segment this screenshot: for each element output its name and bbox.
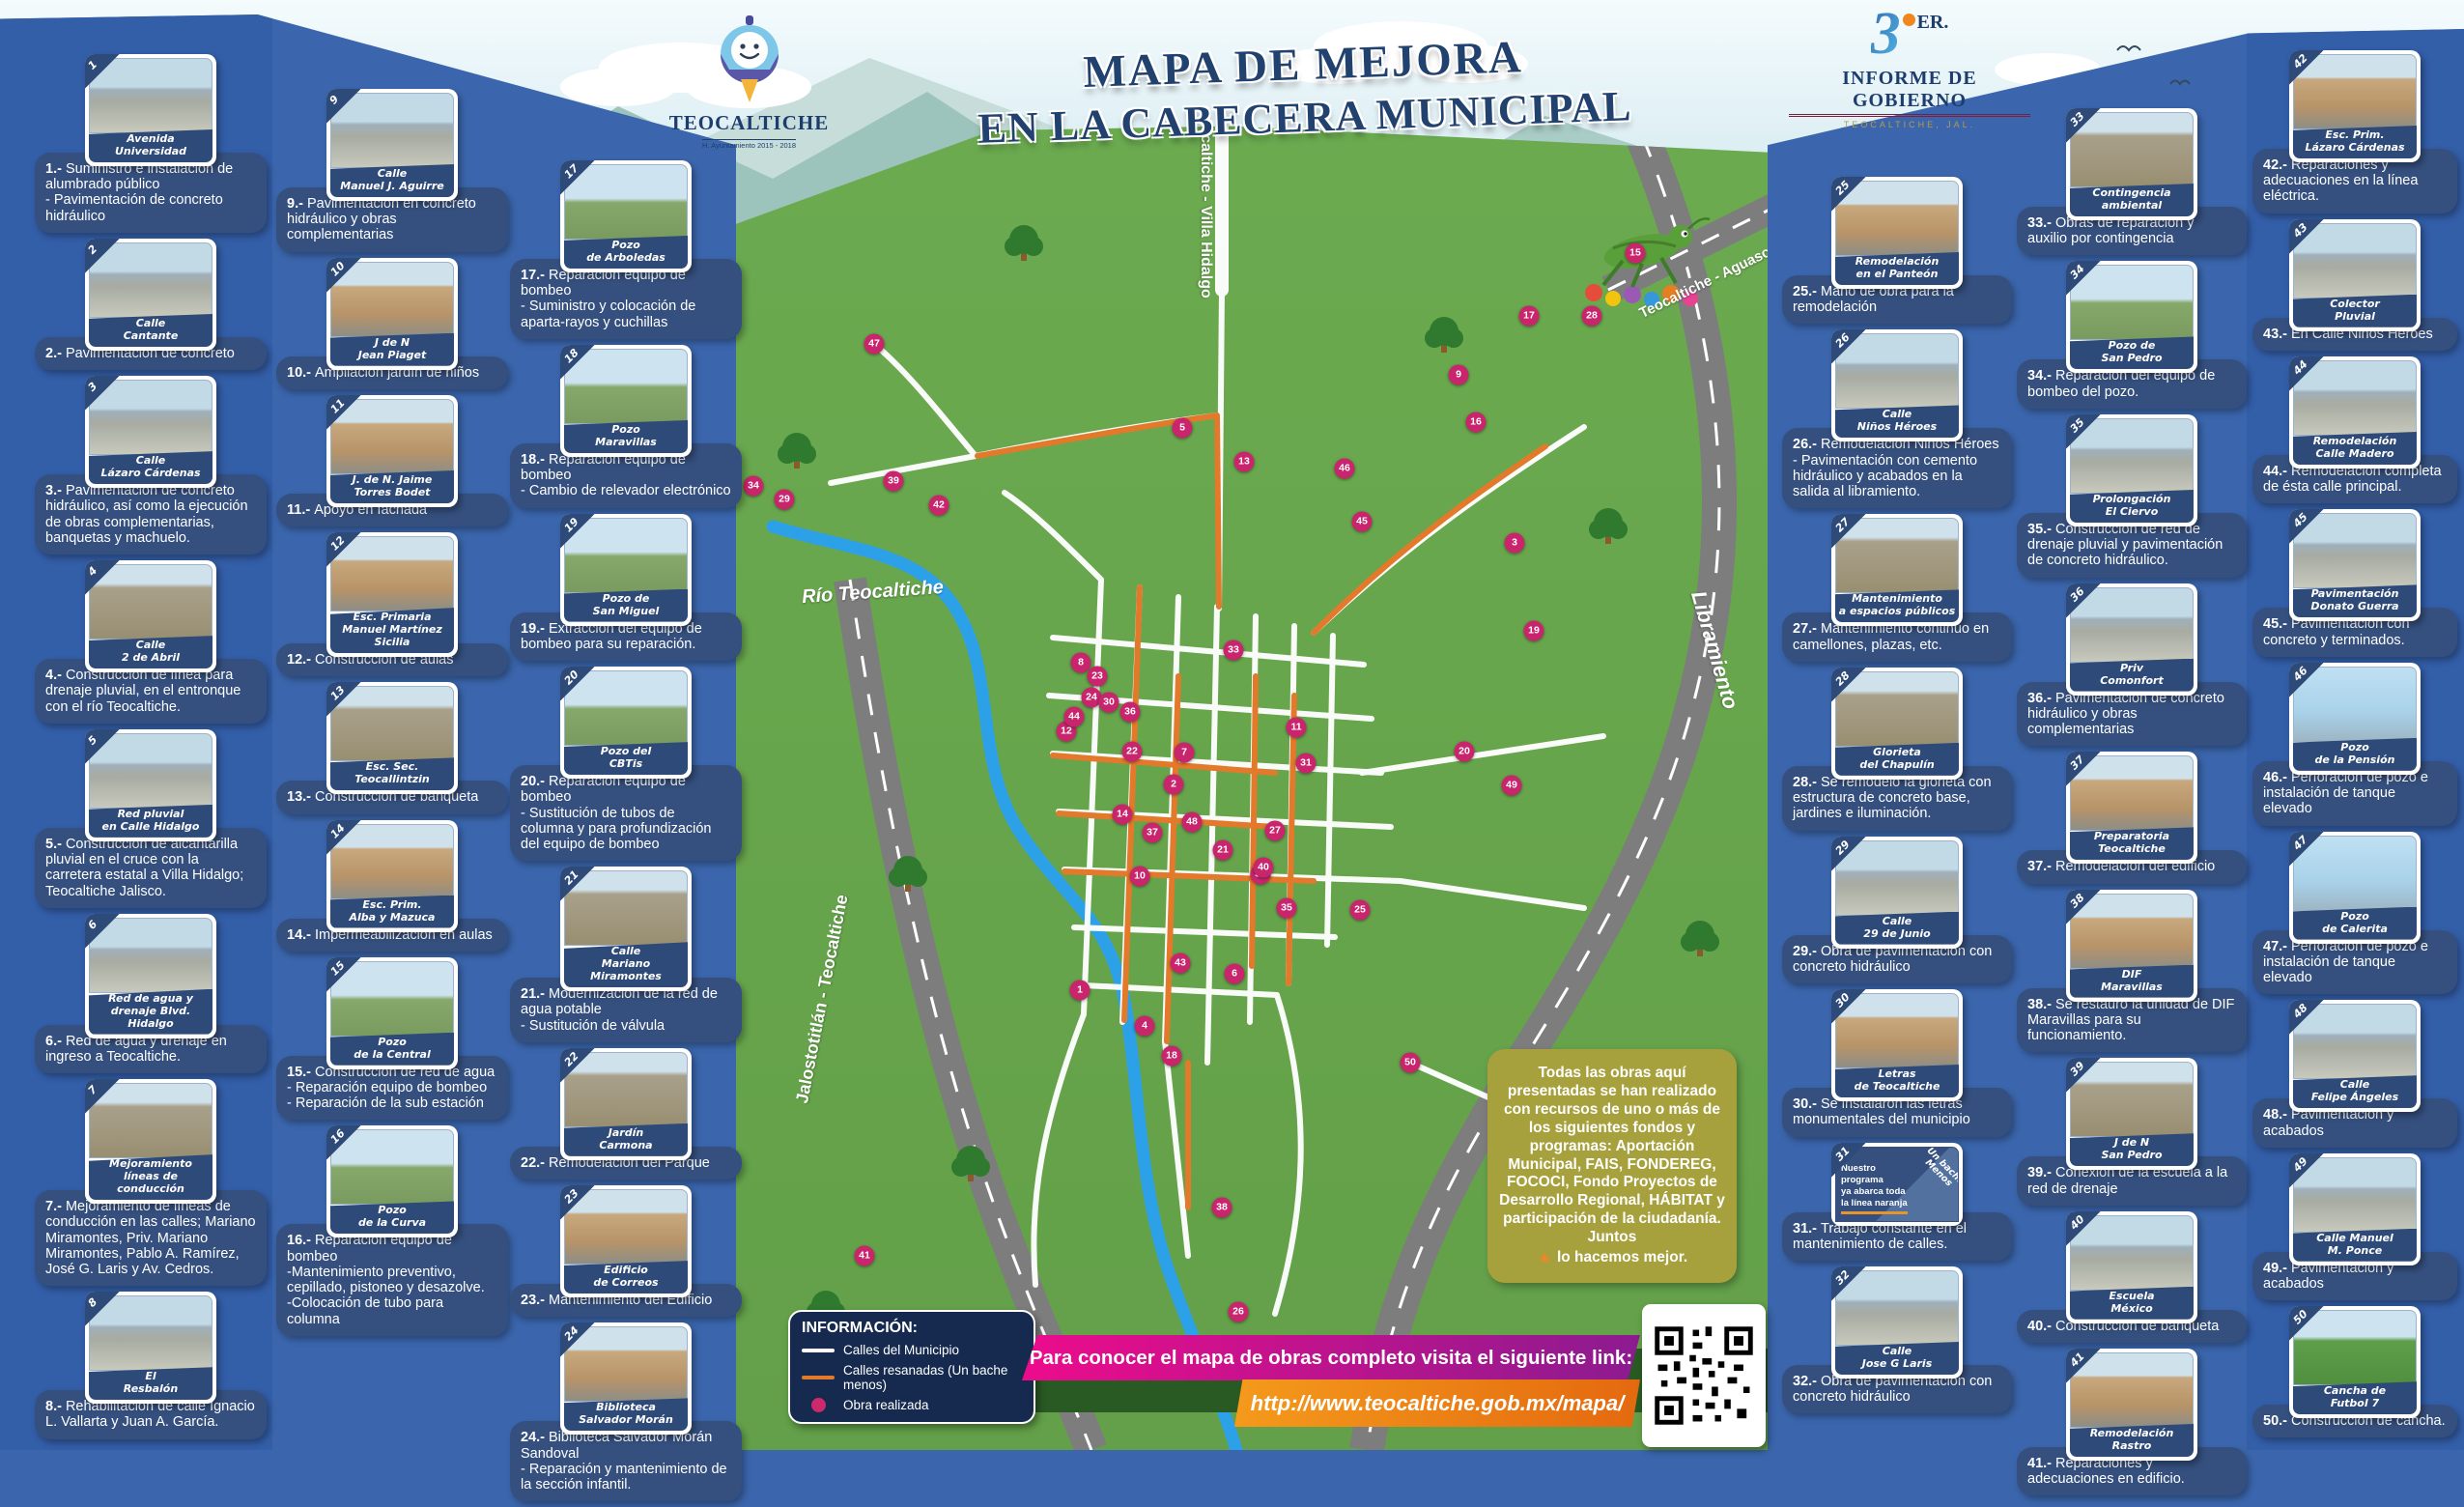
item-photo-caption: Mantenimiento a espacios públicos [1835, 589, 1959, 622]
photo-card: 34 Pozo de San Pedro [2066, 261, 2197, 373]
photo-card: 5 Red pluvial en Calle Hidalgo [85, 729, 216, 841]
map-marker-25: 25 [1350, 900, 1371, 921]
legend-entry-completed-work: Obra realizada [802, 1398, 1022, 1412]
map-marker-9: 9 [1449, 365, 1469, 385]
improvement-item: 36 Priv Comonfort 36.- Pavimentación de … [2017, 583, 2247, 747]
item-number: 14 [328, 821, 348, 840]
item-description-text: Construcción de alcantarilla pluvial en … [45, 837, 243, 899]
photo-card: 46 Pozo de la Pensión [2289, 663, 2421, 775]
map-marker-40: 40 [1254, 858, 1274, 878]
item-photo-caption: Jardín Carmona [564, 1123, 688, 1156]
improvement-item: 34 Pozo de San Pedro 34.- Reparación del… [2017, 261, 2247, 408]
corner-fold: 31 [1831, 1143, 1866, 1178]
item-number: 4 [86, 564, 100, 579]
item-description-text: Biblioteca Salvador Morán Sandoval - Rep… [521, 1430, 727, 1493]
item-photo-caption: Pozo de San Pedro [2070, 336, 2194, 369]
map-marker-44: 44 [1064, 707, 1085, 727]
corner-fold: 5 [85, 729, 120, 764]
item-description-text: Pavimentación de concreto hidráulico, as… [45, 483, 248, 546]
numeral-three-icon: 3 [1871, 8, 1901, 62]
item-photo-caption: Red de agua y drenaje Blvd. Hidalgo [89, 989, 212, 1035]
map-marker-31: 31 [1296, 753, 1317, 774]
map-marker-5: 5 [1173, 418, 1193, 439]
item-description-number: 26.- [1793, 437, 1821, 452]
corner-fold: 13 [326, 682, 361, 717]
photo-card: 3 Calle Lázaro Cárdenas [85, 376, 216, 488]
item-number: 5 [86, 733, 100, 748]
map-marker-6: 6 [1225, 964, 1245, 984]
photo-card: 26 Calle Niños Héroes [1831, 329, 1963, 441]
corner-fold: 23 [560, 1185, 595, 1220]
item-description-number: 16.- [287, 1233, 315, 1248]
corner-fold: 3 [85, 376, 120, 411]
item-number: 17 [562, 161, 581, 181]
item-description-number: 45.- [2263, 616, 2291, 632]
corner-fold: 35 [2066, 414, 2101, 449]
item-description: 7.- Mejoramiento de líneas de conducción… [35, 1190, 267, 1286]
funding-note-text: Todas las obras aquí presentadas se han … [1499, 1065, 1725, 1245]
item-photo-caption: Mejoramiento líneas de conducción [89, 1154, 212, 1200]
item-description-number: 46.- [2263, 770, 2291, 785]
orange-line-swatch [802, 1376, 835, 1379]
improvement-item: 21 Calle Mariano Miramontes 21.- Moderni… [510, 867, 742, 1042]
item-description-number: 8.- [45, 1399, 66, 1414]
map-legend: INFORMACIÓN: Calles del Municipio Calles… [788, 1310, 1035, 1424]
item-photo-caption: Avenida Universidad [89, 129, 212, 162]
improvement-item: 5 Red pluvial en Calle Hidalgo 5.- Const… [35, 729, 267, 908]
photo-card: 9 Calle Manuel J. Aguirre [326, 89, 458, 201]
corner-fold: 43 [2289, 219, 2324, 254]
item-photo-caption: Esc. Prim. Lázaro Cárdenas [2293, 126, 2417, 158]
item-description-text: Pavimentación de concreto hidráulico y o… [2027, 691, 2224, 737]
items-column-4: 25 Remodelación en el Panteón 25.- Mano … [1782, 177, 2012, 1419]
improvement-item: 39 J de N San Pedro 39.- Conexión de la … [2017, 1058, 2247, 1205]
improvement-item: 24 Biblioteca Salvador Morán 24.- Biblio… [510, 1322, 742, 1501]
photo-card: 1 Avenida Universidad [85, 54, 216, 166]
item-number: 6 [86, 918, 100, 932]
corner-fold: 14 [326, 820, 361, 855]
item-description-number: 3.- [45, 483, 66, 498]
improvement-item: 18 Pozo Maravillas 18.- Reparación equip… [510, 345, 742, 508]
corner-fold: 4 [85, 560, 120, 595]
item-photo-caption: Pozo del CBTis [564, 742, 688, 775]
qr-code [1642, 1304, 1766, 1447]
item-number: 49 [2291, 1154, 2310, 1174]
item-number: 3 [86, 380, 100, 394]
item-photo-caption: Cancha de Futbol 7 [2293, 1381, 2417, 1414]
photo-card: 30 Letras de Teocaltiche [1831, 989, 1963, 1101]
map-marker-16: 16 [1466, 412, 1487, 433]
item-photo-caption: Pozo de la Curva [330, 1201, 454, 1234]
corner-fold: 49 [2289, 1153, 2324, 1188]
item-description-number: 27.- [1793, 621, 1821, 637]
photo-card: 12 Esc. Primaria Manuel Martínez Sicilia [326, 532, 458, 657]
item-photo-caption: Esc. Sec. Teocallintzin [330, 757, 454, 790]
item-number: 45 [2291, 511, 2310, 530]
item-number: 40 [2068, 1212, 2087, 1232]
corner-fold: 20 [560, 667, 595, 701]
item-number: 20 [562, 668, 581, 688]
item-description-number: 19.- [521, 621, 549, 637]
photo-card: 4 Calle 2 de Abril [85, 560, 216, 672]
link-url[interactable]: http://www.teocaltiche.gob.mx/mapa/ [1251, 1391, 1625, 1416]
item-description: 16.- Reparación equipo de bombeo -Manten… [276, 1224, 508, 1335]
photo-card: 7 Mejoramiento líneas de conducción [85, 1079, 216, 1204]
photo-card: 20 Pozo del CBTis [560, 667, 692, 779]
item-description-number: 10.- [287, 365, 315, 381]
corner-fold: 8 [85, 1292, 120, 1326]
item-description-text: Mejoramiento de líneas de conducción en … [45, 1199, 256, 1277]
improvement-item: 47 Pozo de Calerita 47.- Perforación de … [2252, 832, 2457, 995]
item-description-number: 31.- [1793, 1221, 1821, 1237]
map-marker-10: 10 [1130, 867, 1150, 887]
improvement-item: 45 Pavimentación Donato Guerra 45.- Pavi… [2252, 509, 2457, 656]
item-description-number: 20.- [521, 774, 549, 789]
item-number: 9 [327, 93, 342, 107]
corner-fold: 37 [2066, 752, 2101, 786]
item-number: 37 [2068, 753, 2087, 773]
funding-note-tail: lo hacemos mejor. [1557, 1249, 1687, 1265]
link-url-banner[interactable]: http://www.teocaltiche.gob.mx/mapa/ [1234, 1379, 1640, 1427]
item-number: 35 [2068, 415, 2087, 435]
map-marker-37: 37 [1143, 823, 1163, 843]
streets-orange [977, 415, 1545, 1208]
map-marker-47: 47 [864, 334, 885, 355]
improvement-item: 7 Mejoramiento líneas de conducción 7.- … [35, 1079, 267, 1286]
item-photo-caption: Preparatoria Teocaltiche [2070, 827, 2194, 860]
corner-fold: 9 [326, 89, 361, 124]
corner-fold: 22 [560, 1048, 595, 1083]
improvement-item: 3 Calle Lázaro Cárdenas 3.- Pavimentació… [35, 376, 267, 554]
item-photo-caption: Edificio de Correos [564, 1261, 688, 1294]
corner-fold: 38 [2066, 890, 2101, 924]
bird-icon [2168, 73, 2192, 91]
item-description-text: Construcción de red de agua - Reparación… [287, 1065, 495, 1111]
improvement-item: 6 Red de agua y drenaje Blvd. Hidalgo 6.… [35, 914, 267, 1073]
photo-card: 21 Calle Mariano Miramontes [560, 867, 692, 991]
map-marker-14: 14 [1113, 805, 1133, 825]
corner-fold: 24 [560, 1322, 595, 1357]
photo-card: 33 Contingencia ambiental [2066, 108, 2197, 220]
improvement-item: 8 El Resbalón 8.- Rehabilitación de call… [35, 1292, 267, 1438]
map-marker-19: 19 [1524, 621, 1544, 641]
item-number: 47 [2291, 833, 2310, 852]
improvement-item: 10 J de N Jean Piaget 10.- Ampliación ja… [276, 258, 508, 389]
item-number: 27 [1833, 516, 1853, 535]
item-description-number: 34.- [2027, 368, 2055, 384]
legend-entry-streets: Calles del Municipio [802, 1343, 1022, 1357]
map-marker-1: 1 [1070, 981, 1090, 1001]
corner-fold: 25 [1831, 177, 1866, 212]
corner-fold: 17 [560, 160, 595, 195]
item-description-text: Rehabilitación de calle Ignacio L. Valla… [45, 1399, 255, 1430]
item-photo-caption: J. de N. Jaime Torres Bodet [330, 470, 454, 503]
map-marker-39: 39 [884, 471, 904, 492]
items-column-2: 9 Calle Manuel J. Aguirre 9.- Pavimentac… [276, 89, 508, 1342]
photo-card: 27 Mantenimiento a espacios públicos [1831, 514, 1963, 626]
item-description-number: 30.- [1793, 1096, 1821, 1112]
map-marker-18: 18 [1162, 1046, 1182, 1066]
item-photo-caption: Pozo de San Miguel [564, 589, 688, 622]
item-number: 26 [1833, 331, 1853, 351]
improvement-item: 4 Calle 2 de Abril 4.- Construcción de l… [35, 560, 267, 724]
improvement-item: 44 Remodelación Calle Madero 44.- Remode… [2252, 356, 2457, 503]
improvement-item: 32 Calle Jose G Laris 32.- Obra de pavim… [1782, 1266, 2012, 1413]
map-marker-48: 48 [1182, 812, 1203, 833]
photo-card: 2 Calle Cantante [85, 239, 216, 351]
map-marker-22: 22 [1122, 742, 1143, 762]
item-photo-caption: Calle Mariano Miramontes [564, 942, 688, 987]
items-column-5: 33 Contingencia ambiental 33.- Obras de … [2017, 108, 2247, 1501]
item-description-number: 40.- [2027, 1319, 2055, 1334]
legend-label: Calles del Municipio [843, 1343, 959, 1357]
items-column-3: 17 Pozo de Arboledas 17.- Reparación equ… [510, 160, 742, 1507]
item-description-number: 22.- [521, 1155, 549, 1171]
improvement-item: 46 Pozo de la Pensión 46.- Perforación d… [2252, 663, 2457, 826]
item-number: 16 [328, 1127, 348, 1147]
item-description-number: 18.- [521, 452, 549, 468]
photo-card: 32 Calle Jose G Laris [1831, 1266, 1963, 1379]
corner-fold: 28 [1831, 668, 1866, 702]
corner-fold: 39 [2066, 1058, 2101, 1093]
item-description-number: 28.- [1793, 775, 1821, 790]
corner-fold: 10 [326, 258, 361, 293]
bird-icon [2115, 41, 2142, 58]
map-marker-38: 38 [1212, 1198, 1232, 1218]
corner-fold: 32 [1831, 1266, 1866, 1301]
map-marker-35: 35 [1277, 898, 1297, 919]
item-description-number: 49.- [2263, 1261, 2291, 1276]
item-photo-caption: DIF Maravillas [2070, 965, 2194, 998]
item-photo-caption: Pozo de Calerita [2293, 907, 2417, 940]
legend-entry-resurfaced: Calles resanadas (Un bache menos) [802, 1363, 1022, 1392]
item-description-number: 2.- [45, 346, 66, 361]
item-photo-caption: Esc. Prim. Alba y Mazuca [330, 896, 454, 928]
corner-fold: 45 [2289, 509, 2324, 544]
item-description-number: 23.- [521, 1293, 549, 1308]
corner-fold: 18 [560, 345, 595, 380]
corner-fold: 1 [85, 54, 120, 89]
item-description-text: Pavimentación en concreto hidráulico y o… [287, 196, 476, 242]
item-number: 11 [328, 396, 348, 415]
item-description-number: 15.- [287, 1065, 315, 1080]
item-description-text: Conexión de la escuela a la red de drena… [2027, 1165, 2227, 1196]
item-description-number: 48.- [2263, 1107, 2291, 1123]
improvement-item: 12 Esc. Primaria Manuel Martínez Sicilia… [276, 532, 508, 676]
map-marker-36: 36 [1120, 702, 1141, 723]
item-number: 2 [86, 242, 100, 257]
item-number: 22 [562, 1049, 581, 1068]
photo-card: 42 Esc. Prim. Lázaro Cárdenas [2289, 50, 2421, 162]
improvement-item: 35 Prolongación El Ciervo 35.- Construcc… [2017, 414, 2247, 578]
item-number: 29 [1833, 838, 1853, 857]
improvement-item: 20 Pozo del CBTis 20.- Reparación equipo… [510, 667, 742, 861]
item-description-text: Reparación equipo de bombeo - Sustitució… [521, 774, 711, 852]
item-number: 12 [328, 534, 348, 554]
improvement-item: 22 Jardín Carmona 22.- Remodelación del … [510, 1048, 742, 1180]
photo-card: 48 Calle Felipe Ángeles [2289, 1000, 2421, 1112]
teocaltiche-logo: TEOCALTICHE H. Ayuntamiento 2015 - 2018 [665, 14, 834, 153]
map-marker-4: 4 [1135, 1016, 1155, 1037]
item-description-number: 14.- [287, 927, 315, 943]
photo-card: 16 Pozo de la Curva [326, 1125, 458, 1237]
item-photo-caption: Escuela México [2070, 1287, 2194, 1320]
corner-fold: 30 [1831, 989, 1866, 1024]
item-number: 30 [1833, 991, 1853, 1010]
map-marker-11: 11 [1287, 718, 1307, 738]
item-description-number: 25.- [1793, 284, 1821, 299]
item-number: 43 [2291, 220, 2310, 240]
item-description-number: 41.- [2027, 1456, 2055, 1471]
logo-subtitle: H. Ayuntamiento 2015 - 2018 [702, 139, 796, 150]
er-suffix: ER. [1917, 12, 1949, 34]
link-banner-text: Para conocer el mapa de obras completo v… [1030, 1347, 1632, 1370]
improvement-item: 43 Colector Pluvial 43.- En Calle Niños … [2252, 219, 2457, 351]
item-number: 50 [2291, 1308, 2310, 1327]
corner-fold: 47 [2289, 832, 2324, 867]
photo-card: 41 Remodelación Rastro [2066, 1349, 2197, 1461]
item-description-number: 13.- [287, 789, 315, 805]
improvement-item: 2 Calle Cantante 2.- Pavimentación de co… [35, 239, 267, 370]
item-photo-caption: Calle Manuel J. Aguirre [330, 164, 454, 197]
map-marker-33: 33 [1224, 640, 1244, 661]
item-description-number: 11.- [287, 502, 314, 518]
item-description-text: Suministro e instalación de alumbrado pú… [45, 161, 233, 224]
item-photo-caption: Calle 29 de Junio [1835, 912, 1959, 945]
item-description-text: Construcción de línea para drenaje pluvi… [45, 668, 241, 714]
corner-fold: 50 [2289, 1306, 2324, 1341]
corner-fold: 7 [85, 1079, 120, 1114]
item-number: 24 [562, 1324, 581, 1344]
map-marker-43: 43 [1171, 953, 1191, 974]
spinning-top-icon [712, 14, 787, 106]
item-number: 36 [2068, 584, 2087, 604]
item-number: 7 [86, 1083, 100, 1097]
corner-fold: 42 [2289, 50, 2324, 85]
item-description-number: 38.- [2027, 997, 2055, 1012]
map-marker-2: 2 [1164, 775, 1184, 795]
item-photo-caption: Remodelación Calle Madero [2293, 432, 2417, 465]
item-description-text: Se remodeló la glorieta con estructura d… [1793, 775, 1992, 821]
improvement-item: 31 Un bache MenosNuestro programa ya aba… [1782, 1143, 2012, 1261]
improvement-item: 1 Avenida Universidad 1.- Suministro e i… [35, 54, 267, 233]
item-description-number: 47.- [2263, 939, 2291, 954]
item-photo-caption: J de N San Pedro [2070, 1133, 2194, 1166]
item-number: 21 [562, 868, 581, 888]
photo-card: 24 Biblioteca Salvador Morán [560, 1322, 692, 1435]
item-photo-caption: Calle Niños Héroes [1835, 405, 1959, 438]
corner-fold: 16 [326, 1125, 361, 1160]
item-description-text: Reparación equipo de bombeo - Cambio de … [521, 452, 731, 498]
map-marker-26: 26 [1229, 1302, 1249, 1322]
item-photo-caption: Calle Lázaro Cárdenas [89, 451, 212, 484]
funding-note-box: Todas las obras aquí presentadas se han … [1487, 1049, 1737, 1283]
map-marker-3: 3 [1505, 533, 1525, 554]
item-photo-caption: Calle Felipe Ángeles [2293, 1075, 2417, 1108]
item-number: 41 [2068, 1350, 2087, 1369]
item-number: 28 [1833, 668, 1853, 688]
item-description-text: Reparación equipo de bombeo -Mantenimien… [287, 1233, 485, 1326]
item-number: 44 [2291, 357, 2310, 377]
photo-card: 29 Calle 29 de Junio [1831, 837, 1963, 949]
pyramid-icon: ▲ [1537, 1247, 1553, 1265]
improvement-item: 25 Remodelación en el Panteón 25.- Mano … [1782, 177, 2012, 324]
map-marker-50: 50 [1401, 1053, 1421, 1073]
photo-card: 15 Pozo de la Central [326, 957, 458, 1069]
item-number: 39 [2068, 1060, 2087, 1079]
improvement-item: 49 Calle Manuel M. Ponce 49.- Pavimentac… [2252, 1153, 2457, 1300]
photo-card: 17 Pozo de Arboledas [560, 160, 692, 272]
item-number: 1 [86, 58, 100, 72]
corner-fold: 46 [2289, 663, 2324, 697]
improvement-item: 19 Pozo de San Miguel 19.- Extracción de… [510, 514, 742, 661]
item-photo-caption: Pozo de la Central [330, 1033, 454, 1066]
map-marker-27: 27 [1265, 821, 1286, 841]
corner-fold: 48 [2289, 1000, 2324, 1035]
map-marker-30: 30 [1099, 693, 1119, 713]
item-number: 46 [2291, 664, 2310, 683]
photo-card: 18 Pozo Maravillas [560, 345, 692, 457]
corner-fold: 26 [1831, 329, 1866, 364]
item-description-text: Mantenimiento continuo en camellones, pl… [1793, 621, 1989, 652]
logo-wordmark: TEOCALTICHE [665, 111, 834, 135]
improvement-item: 15 Pozo de la Central 15.- Construcción … [276, 957, 508, 1121]
photo-card: 36 Priv Comonfort [2066, 583, 2197, 696]
item-number: 8 [86, 1295, 100, 1310]
map-marker-17: 17 [1519, 306, 1540, 327]
map-marker-45: 45 [1352, 512, 1373, 532]
item-photo-caption: Pozo de la Pensión [2293, 738, 2417, 771]
item-photo-caption: Calle Jose G Laris [1835, 1342, 1959, 1375]
photo-card: 10 J de N Jean Piaget [326, 258, 458, 370]
photo-card: 38 DIF Maravillas [2066, 890, 2197, 1002]
map-marker-13: 13 [1234, 452, 1255, 472]
un-bache-menos-ribbon: Un bache Menos [1917, 1147, 1959, 1194]
corner-fold: 44 [2289, 356, 2324, 391]
item-photo-caption: Esc. Primaria Manuel Martínez Sicilia [330, 608, 454, 653]
improvement-item: 17 Pozo de Arboledas 17.- Reparación equ… [510, 160, 742, 339]
improvement-item: 27 Mantenimiento a espacios públicos 27.… [1782, 514, 2012, 661]
photo-card: 6 Red de agua y drenaje Blvd. Hidalgo [85, 914, 216, 1038]
corner-fold: 36 [2066, 583, 2101, 618]
improvement-item: 42 Esc. Prim. Lázaro Cárdenas 42.- Repar… [2252, 50, 2457, 213]
map-marker-15: 15 [1626, 243, 1646, 264]
orange-dot-icon [1903, 14, 1915, 26]
map-marker-46: 46 [1335, 459, 1355, 479]
photo-card: 35 Prolongación El Ciervo [2066, 414, 2197, 526]
legend-title: INFORMACIÓN: [802, 1320, 1022, 1337]
map-marker-20: 20 [1455, 742, 1475, 762]
corner-fold: 21 [560, 867, 595, 901]
improvement-item: 48 Calle Felipe Ángeles 48.- Pavimentaci… [2252, 1000, 2457, 1147]
improvement-item: 26 Calle Niños Héroes 26.- Remodelación … [1782, 329, 2012, 508]
photo-card: 50 Cancha de Futbol 7 [2289, 1306, 2421, 1418]
improvement-item: 33 Contingencia ambiental 33.- Obras de … [2017, 108, 2247, 255]
items-column-6: 42 Esc. Prim. Lázaro Cárdenas 42.- Repar… [2252, 50, 2457, 1443]
corner-fold: 27 [1831, 514, 1866, 549]
item-number: 15 [328, 958, 348, 978]
photo-card: 25 Remodelación en el Panteón [1831, 177, 1963, 289]
map-marker-34: 34 [744, 476, 764, 497]
improvement-item: 13 Esc. Sec. Teocallintzin 13.- Construc… [276, 682, 508, 813]
improvement-item: 38 DIF Maravillas 38.- Se restauró la un… [2017, 890, 2247, 1053]
item-photo-caption: Pozo de Arboledas [564, 236, 688, 269]
item-description-number: 17.- [521, 268, 549, 283]
item-number: 34 [2068, 263, 2087, 282]
item-description-number: 50.- [2263, 1413, 2291, 1429]
photo-card: 31 Un bache MenosNuestro programa ya aba… [1831, 1143, 1963, 1226]
improvement-item: 23 Edificio de Correos 23.- Mantenimient… [510, 1185, 742, 1317]
